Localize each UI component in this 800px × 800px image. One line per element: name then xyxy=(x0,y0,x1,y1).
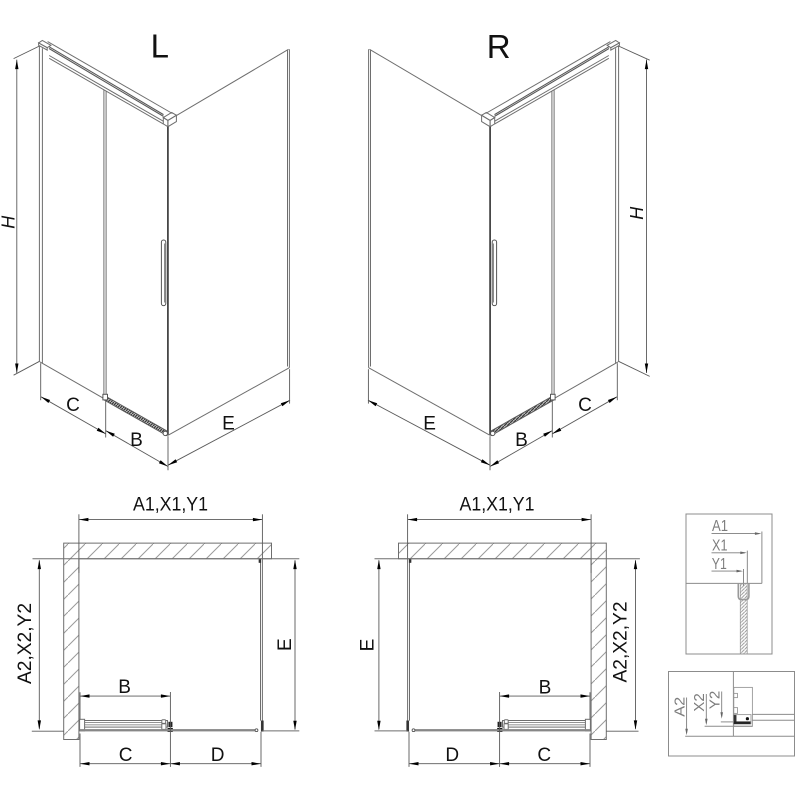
svg-text:B: B xyxy=(130,430,143,451)
svg-text:E: E xyxy=(423,413,436,434)
svg-text:A2: A2 xyxy=(672,697,689,717)
svg-text:E: E xyxy=(358,639,379,652)
svg-text:X1: X1 xyxy=(712,537,728,554)
svg-text:D: D xyxy=(445,745,459,766)
svg-text:H: H xyxy=(627,206,647,220)
svg-text:C: C xyxy=(119,745,133,766)
svg-text:L: L xyxy=(151,28,169,65)
svg-text:Y1: Y1 xyxy=(712,556,727,573)
svg-text:B: B xyxy=(539,678,552,699)
svg-text:D: D xyxy=(211,745,225,766)
svg-text:A2,X2,Y2: A2,X2,Y2 xyxy=(15,603,36,684)
svg-text:A1,X1,Y1: A1,X1,Y1 xyxy=(460,495,535,516)
svg-text:C: C xyxy=(537,745,551,766)
svg-text:C: C xyxy=(578,395,592,416)
svg-text:E: E xyxy=(275,638,296,651)
svg-text:A1,X1,Y1: A1,X1,Y1 xyxy=(133,495,208,516)
svg-text:R: R xyxy=(487,28,511,65)
svg-text:E: E xyxy=(222,413,235,434)
svg-text:C: C xyxy=(66,395,80,416)
svg-text:B: B xyxy=(515,430,528,451)
svg-text:A1: A1 xyxy=(712,518,728,535)
svg-text:Y2: Y2 xyxy=(706,691,723,710)
svg-text:H: H xyxy=(0,215,19,229)
svg-text:A2,X2,Y2: A2,X2,Y2 xyxy=(611,602,632,683)
svg-text:B: B xyxy=(118,677,131,698)
